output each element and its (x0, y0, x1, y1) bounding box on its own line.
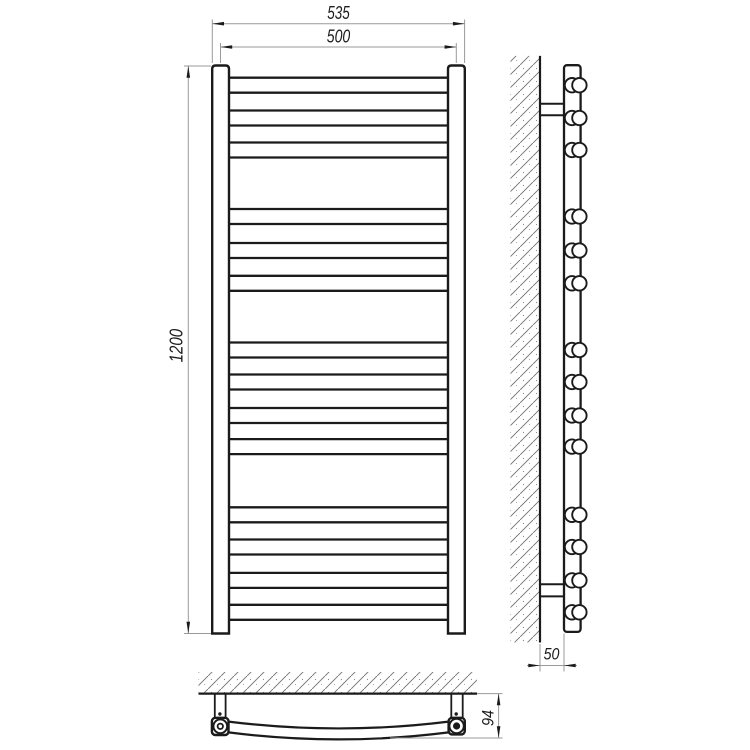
svg-text:50: 50 (544, 645, 560, 664)
svg-text:535: 535 (327, 3, 350, 23)
svg-text:500: 500 (327, 27, 351, 47)
svg-text:94: 94 (479, 710, 498, 726)
svg-text:1200: 1200 (167, 329, 187, 363)
